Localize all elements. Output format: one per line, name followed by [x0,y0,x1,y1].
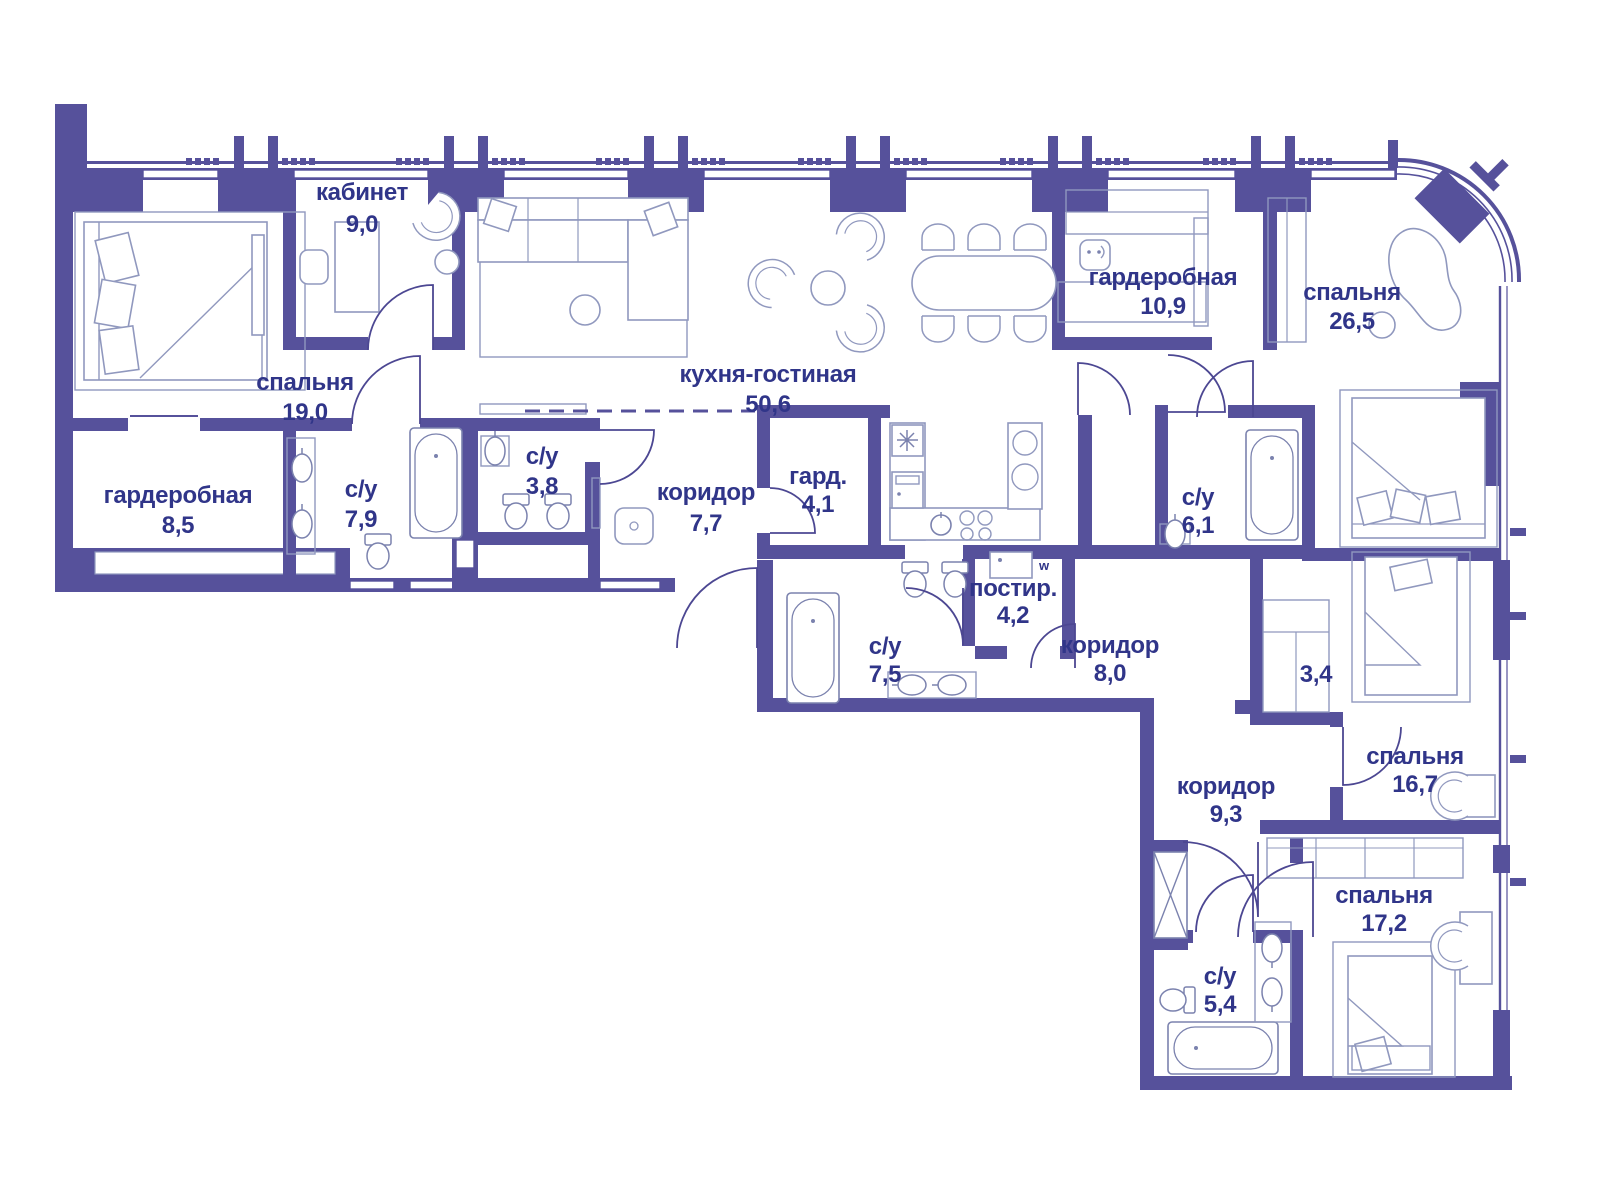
closet-34 [1263,600,1329,712]
room-area: 26,5 [1329,308,1375,335]
room-name: с/у [526,443,559,470]
room-name: гард. [789,463,847,490]
lounge-chairs [739,203,894,361]
room-area: 7,7 [690,510,722,537]
room-area: 3,8 [526,473,558,500]
room-name: с/у [869,633,902,660]
room-label-su-79: с/у7,9 [345,476,378,533]
room-label-kabinet: кабинет9,0 [316,179,409,238]
room-area: 9,3 [1210,801,1242,828]
room-area: 17,2 [1361,910,1407,937]
room-name: с/у [1204,963,1237,990]
room-label-su-75: с/у7,5 [869,633,902,688]
room-name: с/у [345,476,378,503]
doors [352,285,1401,937]
room-name: коридор [657,479,755,506]
room-name: кабинет [316,179,409,206]
room-area: 16,7 [1392,771,1438,798]
room-area: 5,4 [1204,991,1237,1018]
room-name: гардеробная [1089,264,1238,291]
room-area: 6,1 [1182,512,1214,539]
door-arc-bath54 [1196,875,1253,932]
room-name: коридор [1177,773,1275,800]
room-name: кухня-гостиная [679,361,856,388]
washer-label: w [1038,558,1050,573]
room-label-gard-41: гард.4,1 [789,463,847,518]
room-label-su-54: с/у5,4 [1204,963,1237,1018]
room-label-su-38: с/у3,8 [526,443,559,500]
room-name: спальня [1303,279,1401,306]
room-area: 19,0 [282,399,328,426]
room-area: 7,5 [869,661,901,688]
room-name: спальня [1335,882,1433,909]
laundry-basket [615,508,653,544]
room-area: 8,5 [162,512,194,539]
bathroom-61 [1160,430,1298,548]
room-area: 4,2 [997,602,1029,629]
door-arc-bath79 [352,356,420,424]
room-area: 8,0 [1094,660,1126,687]
room-name: с/у [1182,484,1215,511]
room-label-su-61: с/у6,1 [1182,484,1215,539]
door-arc-corridor93 [1183,842,1258,917]
room-name: коридор [1061,632,1159,659]
room-name: спальня [256,369,354,396]
oven-icon [892,472,923,508]
room-area: 50,6 [745,391,791,418]
floor-plan-drawing: w [0,0,1600,1200]
room-name: спальня [1366,743,1464,770]
room-label-garderobnaya-85: гардеробная8,5 [104,482,253,539]
bedroom-172-furniture [1333,912,1492,1077]
room-area: 3,4 [1300,661,1333,688]
room-label-garderobnaya-109: гардеробная10,9 [1089,264,1238,320]
door-arc-bath61 [1168,355,1225,412]
double-bed-19 [75,212,305,390]
room-name: постир. [969,575,1057,602]
room-label-koridor-93: коридор9,3 [1177,773,1275,828]
sofa-group [478,198,688,357]
room-label-34: 3,4 [1300,661,1333,688]
dining-table [912,224,1056,342]
room-area: 4,1 [802,491,834,518]
room-area: 9,0 [346,211,378,238]
door-arc-entrance [677,568,757,648]
room-label-postir: постир.4,2 [969,575,1057,629]
fridge-icon [892,425,923,456]
floor-plan-page: w [0,0,1600,1200]
room-label-spalnya-19: спальня19,0 [256,369,354,426]
kitchen-counter [890,423,1042,540]
office-desk [300,189,470,312]
room-name: гардеробная [104,482,253,509]
room-label-koridor-77: коридор7,7 [657,479,755,537]
door-arc-bedroom172 [1238,862,1313,937]
room-label-spalnya-172: спальня17,2 [1335,882,1433,937]
door-arc-kitchen [1078,363,1130,415]
door-arc-bath38 [600,430,654,484]
room-area: 10,9 [1140,293,1186,320]
interior-walls [55,180,1500,1076]
room-area: 7,9 [345,506,377,533]
